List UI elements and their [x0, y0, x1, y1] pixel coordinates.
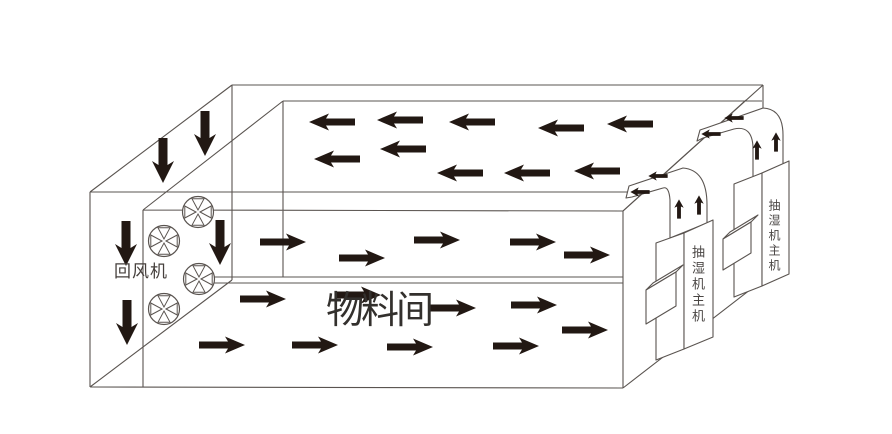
fan-icon — [149, 294, 180, 325]
airflow-down-arrow — [152, 138, 174, 183]
dehumidifier-rear-label: 抽湿机主机 — [768, 199, 780, 274]
airflow-down-arrow — [194, 111, 216, 156]
dehumidifier-front-label: 抽湿机主机 — [690, 245, 703, 325]
airflow-left-arrow — [380, 141, 426, 158]
airflow-left-arrow — [607, 116, 653, 133]
airflow-left-arrow — [314, 151, 360, 168]
airflow-down-arrow — [116, 300, 138, 345]
airflow-left-arrow — [309, 114, 355, 131]
dehumidifier-units — [626, 108, 789, 360]
airflow-right-arrow — [493, 338, 539, 355]
airflow-left-arrow — [449, 114, 495, 131]
airflow-right-arrow — [292, 337, 338, 354]
airflow-left-arrow — [504, 165, 550, 182]
return-fan-label: 回风机 — [114, 264, 168, 281]
airflow-left-arrow — [538, 120, 584, 137]
fan-icon — [183, 197, 214, 228]
airflow-down-arrow — [209, 220, 231, 265]
material-room-label: 物料间 — [326, 291, 431, 329]
airflow-right-arrow — [510, 234, 556, 251]
return-fan-group — [149, 197, 215, 325]
airflow-left-arrow — [574, 163, 620, 180]
airflow-left-arrow — [437, 165, 483, 182]
fan-icon — [149, 226, 180, 257]
airflow-right-arrow — [339, 250, 385, 267]
airflow-right-arrow — [199, 337, 245, 354]
drying-room-airflow-diagram: 回风机 物料间 抽湿机主机 抽湿机主机 — [0, 0, 892, 434]
room-shelf-edges — [190, 277, 623, 283]
airflow-right-arrow — [387, 339, 433, 356]
airflow-right-arrow — [562, 322, 608, 339]
fan-icon — [184, 264, 215, 295]
airflow-right-arrow — [430, 300, 476, 317]
airflow-right-arrow — [564, 247, 610, 264]
airflow-right-arrow — [414, 232, 460, 249]
diagram-canvas — [0, 0, 892, 434]
airflow-down-arrow — [115, 221, 137, 266]
airflow-right-arrow — [511, 297, 557, 314]
airflow-right-arrow — [240, 291, 286, 308]
airflow-left-arrow — [377, 112, 423, 129]
